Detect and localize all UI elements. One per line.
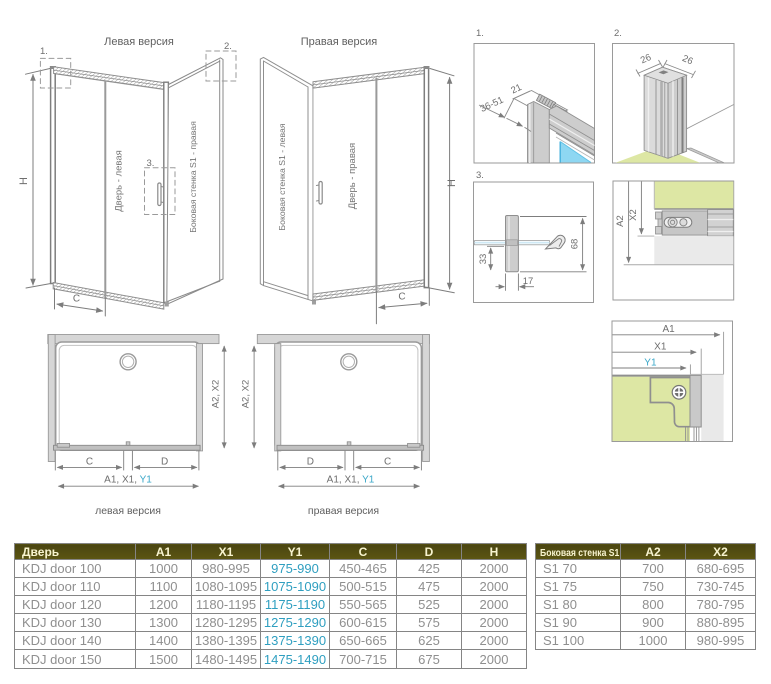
svg-text:A2, X2: A2, X2 xyxy=(211,380,222,409)
svg-text:A2: A2 xyxy=(615,215,626,227)
svg-text:C: C xyxy=(398,292,405,303)
svg-text:A2, X2: A2, X2 xyxy=(240,380,251,409)
svg-text:1.: 1. xyxy=(40,46,48,57)
svg-text:Правая версия: Правая версия xyxy=(301,36,378,48)
svg-text:2.: 2. xyxy=(614,28,622,39)
svg-text:Дверь - правая: Дверь - правая xyxy=(347,143,358,209)
svg-text:C: C xyxy=(86,456,93,467)
svg-text:Боковая стенка S1 - левая: Боковая стенка S1 - левая xyxy=(277,123,287,230)
svg-text:Дверь - левая: Дверь - левая xyxy=(114,150,125,212)
svg-text:C: C xyxy=(73,294,80,305)
svg-text:левая версия: левая версия xyxy=(95,505,161,517)
svg-text:H: H xyxy=(18,177,30,185)
svg-text:17: 17 xyxy=(523,276,534,287)
svg-text:3.: 3. xyxy=(147,158,155,169)
svg-text:правая версия: правая версия xyxy=(308,505,379,517)
svg-text:A1, X1, Y1: A1, X1, Y1 xyxy=(327,475,375,486)
svg-text:1.: 1. xyxy=(476,28,484,39)
svg-text:D: D xyxy=(161,456,168,467)
svg-text:C: C xyxy=(384,456,391,467)
svg-text:3.: 3. xyxy=(476,170,484,181)
svg-text:Левая версия: Левая версия xyxy=(104,36,174,48)
svg-text:H: H xyxy=(446,179,458,187)
svg-text:X1: X1 xyxy=(654,342,667,353)
svg-text:Боковая стенка S1 - правая: Боковая стенка S1 - правая xyxy=(188,121,198,233)
svg-text:X2: X2 xyxy=(628,209,639,221)
svg-text:D: D xyxy=(307,456,314,467)
svg-text:A1: A1 xyxy=(662,324,675,335)
svg-text:33: 33 xyxy=(478,254,489,265)
svg-text:A1, X1, Y1: A1, X1, Y1 xyxy=(104,475,152,486)
svg-text:68: 68 xyxy=(570,239,581,250)
svg-text:Y1: Y1 xyxy=(644,357,657,368)
svg-text:2.: 2. xyxy=(224,41,232,52)
